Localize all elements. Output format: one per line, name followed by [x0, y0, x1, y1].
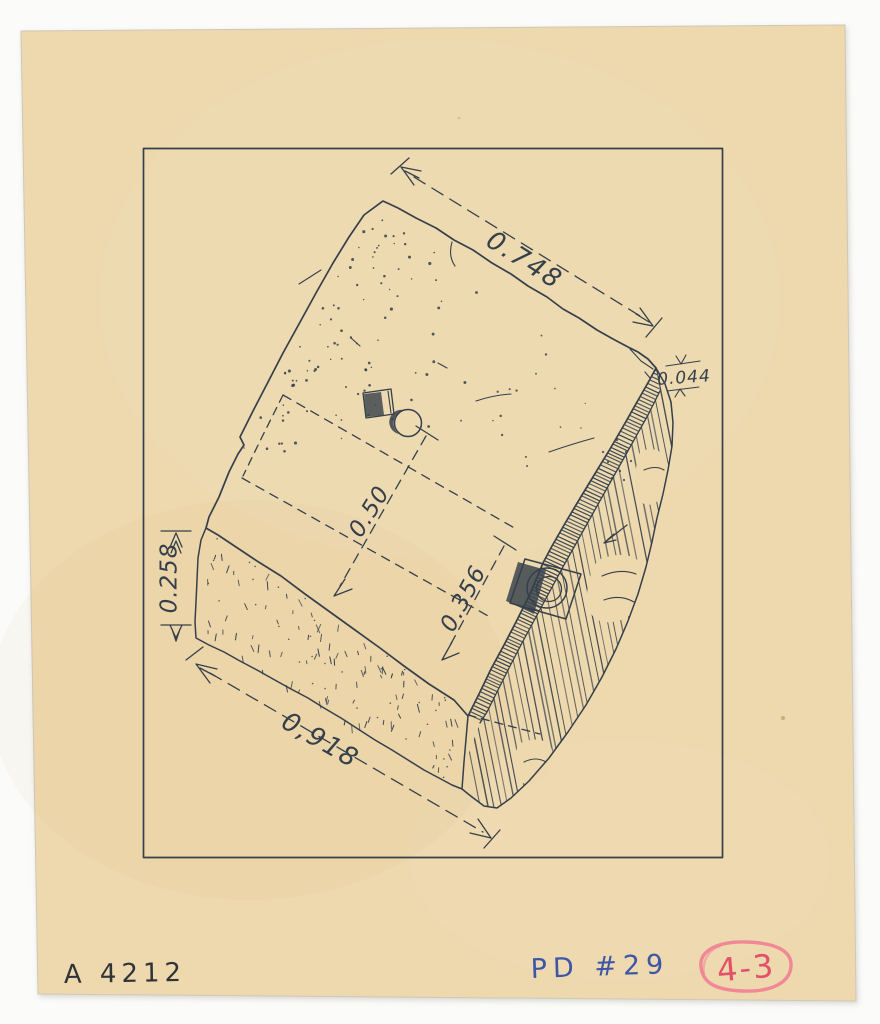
stipple-dot [408, 256, 411, 259]
stipple-dot [363, 299, 364, 300]
stipple-dot [282, 415, 284, 417]
texture-dot [341, 671, 343, 673]
stipple-dot [560, 426, 562, 428]
stipple-dot [357, 393, 359, 395]
stipple-dot [432, 333, 435, 336]
stipple-dot [356, 284, 358, 286]
stipple-dot [337, 307, 340, 310]
stipple-dot [625, 451, 627, 453]
stipple-dot [630, 460, 632, 462]
stipple-dot [410, 399, 413, 402]
stipple-dot [283, 404, 285, 406]
stipple-dot [377, 339, 379, 341]
stipple-dot [308, 360, 310, 362]
texture-dot [446, 766, 448, 768]
stipple-dot [341, 358, 343, 360]
texture-dot [419, 702, 421, 704]
texture-stroke [298, 627, 299, 630]
stipple-dot [333, 304, 335, 306]
stipple-dot [336, 344, 338, 346]
stipple-dot [475, 291, 478, 294]
stipple-dot [403, 232, 405, 234]
texture-dot [390, 702, 392, 704]
stipple-dot [432, 360, 435, 363]
texture-dot [288, 639, 290, 641]
texture-stroke [328, 700, 329, 704]
stipple-dot [317, 366, 320, 369]
stipple-dot [292, 380, 294, 382]
stipple-dot [441, 301, 443, 303]
stipple-dot [362, 230, 365, 233]
stipple-dot [330, 359, 332, 361]
paper-speck [781, 716, 785, 720]
texture-dot [304, 598, 306, 600]
stipple-dot [259, 416, 262, 419]
stipple-dot [616, 439, 618, 441]
texture-stroke [383, 721, 384, 725]
dim-label-corner-chip: 0.044 [657, 366, 712, 390]
stipple-dot [294, 441, 297, 444]
stipple-dot [611, 477, 613, 479]
texture-dot [255, 604, 257, 606]
texture-dot [427, 724, 429, 726]
stipple-dot [389, 289, 390, 290]
stipple-dot [337, 276, 338, 277]
texture-stroke [308, 635, 309, 639]
stipple-dot [535, 373, 537, 375]
texture-dot [435, 710, 437, 712]
texture-dot [216, 538, 218, 540]
stipple-dot [619, 470, 621, 472]
stipple-dot [345, 386, 347, 388]
texture-dot [443, 777, 445, 779]
texture-stroke [262, 670, 263, 674]
stipple-dot [287, 411, 290, 414]
stipple-dot [492, 420, 494, 422]
stipple-dot [428, 262, 431, 265]
stipple-dot [374, 251, 376, 253]
texture-stroke [286, 594, 287, 598]
stipple-dot [335, 414, 337, 416]
texture-dot [404, 669, 406, 671]
stipple-dot [509, 388, 511, 390]
stipple-dot [545, 353, 547, 355]
stipple-dot [266, 447, 269, 450]
stipple-dot [278, 443, 280, 445]
stipple-dot [313, 370, 315, 372]
stipple-dot [288, 369, 291, 372]
texture-stroke [364, 672, 365, 675]
stipple-dot [415, 372, 417, 374]
texture-dot [278, 626, 280, 628]
texture-dot [324, 663, 326, 665]
plan-reference-label: PD #29 [530, 949, 670, 985]
stipple-dot [330, 318, 332, 320]
stipple-dot [384, 316, 387, 319]
texture-dot [443, 758, 445, 760]
stipple-dot [525, 456, 527, 458]
texture-dot [356, 707, 358, 709]
stipple-dot [460, 420, 462, 422]
stipple-dot [384, 235, 387, 238]
stipple-dot [526, 465, 528, 467]
texture-dot [311, 656, 313, 658]
stipple-dot [381, 219, 383, 221]
stipple-dot [299, 346, 301, 348]
stipple-dot [296, 380, 298, 382]
stipple-dot [501, 434, 503, 436]
stipple-dot [243, 447, 244, 448]
stipple-dot [291, 384, 294, 387]
texture-dot [249, 562, 251, 564]
paper-highlight [100, 40, 780, 560]
stipple-dot [319, 324, 320, 325]
texture-dot [405, 738, 407, 740]
stipple-dot [351, 258, 354, 261]
texture-dot [213, 560, 215, 562]
stipple-dot [376, 247, 378, 249]
texture-dot [299, 661, 301, 663]
texture-stroke [252, 636, 253, 639]
grid-reference-label: 4-3 [715, 947, 776, 990]
stipple-dot [585, 403, 586, 404]
stipple-dot [623, 479, 625, 481]
stipple-dot [358, 247, 360, 249]
stipple-dot [607, 461, 609, 463]
stipple-dot [390, 308, 393, 311]
stipple-dot [368, 362, 371, 365]
texture-stroke [452, 740, 453, 746]
stipple-dot [306, 410, 308, 412]
stipple-dot [371, 367, 373, 369]
texture-dot [449, 749, 451, 751]
texture-dot [444, 697, 446, 699]
stipple-dot [322, 307, 325, 310]
stipple-dot [283, 450, 286, 453]
stipple-dot [602, 451, 604, 453]
scan-stage: 0.748 0,918 0.50 0.356 0.258 0.044 A 421… [0, 0, 880, 1024]
stipple-dot [305, 379, 308, 382]
stipple-dot [411, 278, 413, 280]
stipple-dot [365, 369, 368, 372]
stipple-dot [393, 235, 395, 237]
texture-stroke [306, 661, 307, 664]
inventory-number-label: A 4212 [64, 958, 187, 990]
texture-dot [218, 600, 220, 602]
stipple-dot [340, 329, 343, 332]
stipple-dot [282, 419, 284, 421]
stipple-dot [515, 389, 517, 391]
paper-speck-2 [458, 117, 461, 120]
scanned-drawing: 0.748 0,918 0.50 0.356 0.258 0.044 A 421… [0, 0, 880, 1024]
stipple-dot [307, 370, 309, 372]
stipple-dot [554, 388, 556, 390]
stipple-dot [425, 373, 428, 376]
stipple-dot [433, 252, 435, 254]
stipple-dot [372, 228, 374, 230]
texture-stroke [357, 682, 358, 687]
texture-dot [310, 636, 312, 638]
texture-stroke [267, 582, 268, 590]
stipple-dot [463, 381, 466, 384]
texture-stroke [329, 644, 330, 650]
texture-dot [252, 579, 254, 581]
texture-dot [312, 683, 314, 685]
stipple-dot [333, 342, 336, 345]
stipple-dot [380, 282, 382, 284]
stipple-dot [341, 438, 342, 439]
stipple-dot [383, 275, 386, 278]
stipple-dot [427, 425, 430, 428]
stipple-dot [497, 391, 499, 393]
stipple-dot [396, 295, 398, 297]
stipple-dot [541, 335, 543, 337]
texture-stroke [352, 726, 353, 733]
stipple-dot [393, 243, 395, 245]
stipple-dot [404, 243, 406, 245]
stipple-dot [363, 390, 365, 392]
texture-dot [314, 620, 316, 622]
texture-stroke [265, 606, 266, 609]
stipple-dot [341, 419, 343, 421]
stipple-dot [284, 372, 286, 374]
texture-dot [254, 566, 256, 568]
stipple-dot [398, 268, 400, 270]
dim-label-side-height: 0.258 [157, 543, 183, 614]
stipple-dot [368, 384, 371, 387]
texture-dot [445, 699, 447, 701]
texture-dot [324, 688, 326, 690]
texture-dot [381, 668, 383, 670]
texture-dot [377, 717, 379, 719]
stipple-dot [378, 245, 380, 247]
stipple-dot [580, 427, 581, 428]
stipple-dot [349, 266, 352, 269]
stipple-dot [327, 346, 329, 348]
texture-dot [278, 586, 280, 588]
stipple-dot [373, 267, 375, 269]
stipple-dot [499, 415, 502, 418]
stipple-dot [281, 442, 283, 444]
stipple-dot [435, 279, 437, 281]
stipple-dot [372, 256, 374, 258]
texture-dot [386, 655, 388, 657]
stipple-dot [437, 306, 440, 309]
